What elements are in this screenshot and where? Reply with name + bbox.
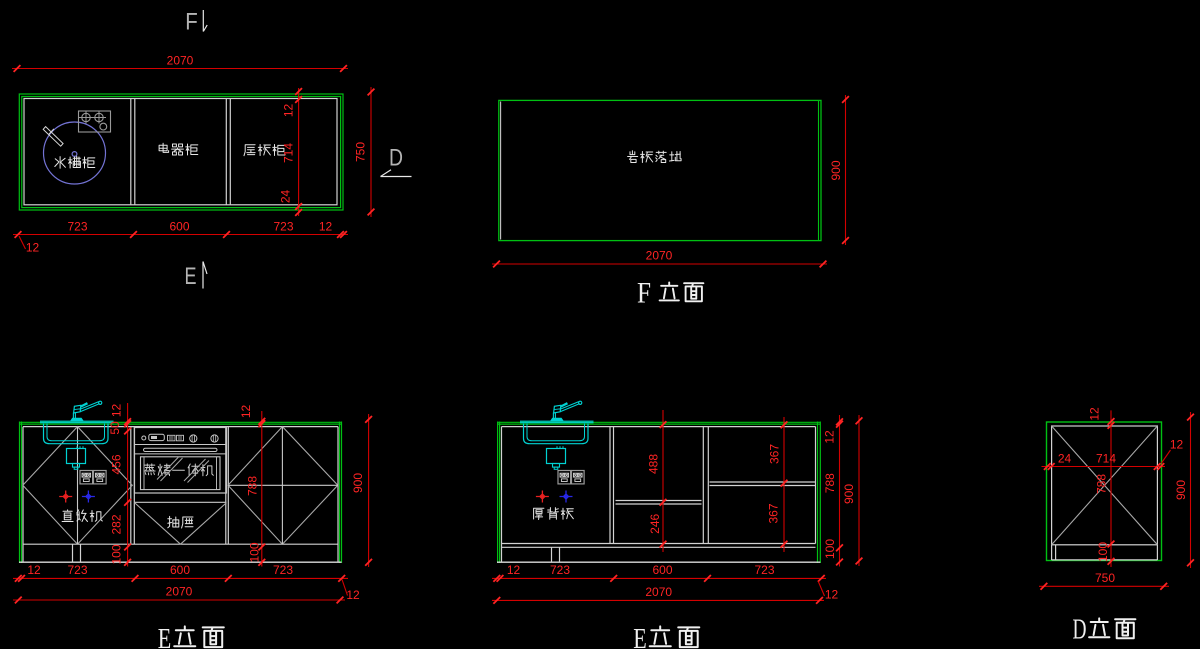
svg-text:282: 282 xyxy=(110,514,124,534)
svg-text:E: E xyxy=(158,623,172,649)
svg-text:900: 900 xyxy=(842,484,856,504)
svg-text:900: 900 xyxy=(1174,480,1188,500)
svg-text:12: 12 xyxy=(1088,407,1102,421)
svg-text:D: D xyxy=(1073,615,1087,646)
svg-text:750: 750 xyxy=(1095,571,1115,585)
svg-text:F: F xyxy=(637,277,651,310)
svg-text:367: 367 xyxy=(767,444,781,464)
svg-text:723: 723 xyxy=(273,220,293,234)
svg-text:788: 788 xyxy=(823,473,837,493)
svg-text:600: 600 xyxy=(170,563,190,577)
svg-text:723: 723 xyxy=(67,563,87,577)
svg-text:900: 900 xyxy=(351,473,365,493)
svg-text:12: 12 xyxy=(110,404,124,418)
svg-text:24: 24 xyxy=(1058,451,1072,465)
svg-text:488: 488 xyxy=(647,454,661,474)
svg-text:24: 24 xyxy=(279,190,293,204)
svg-text:750: 750 xyxy=(354,142,368,162)
svg-text:2070: 2070 xyxy=(646,249,673,263)
svg-text:246: 246 xyxy=(648,513,662,533)
svg-text:788: 788 xyxy=(246,476,260,496)
svg-text:2070: 2070 xyxy=(167,54,194,68)
svg-text:12: 12 xyxy=(26,241,40,255)
svg-text:E: E xyxy=(633,623,647,649)
svg-text:788: 788 xyxy=(1094,474,1108,494)
svg-text:714: 714 xyxy=(282,143,296,163)
svg-text:600: 600 xyxy=(169,220,189,234)
svg-text:456: 456 xyxy=(110,454,124,474)
svg-text:100: 100 xyxy=(1096,542,1110,562)
svg-text:2070: 2070 xyxy=(645,585,672,599)
svg-text:12: 12 xyxy=(319,220,333,234)
svg-text:723: 723 xyxy=(273,563,293,577)
svg-text:100: 100 xyxy=(248,542,262,562)
svg-text:F: F xyxy=(185,9,198,36)
svg-text:12: 12 xyxy=(825,588,839,602)
svg-text:12: 12 xyxy=(823,430,837,444)
svg-text:D: D xyxy=(389,145,403,172)
svg-text:600: 600 xyxy=(652,563,672,577)
svg-text:12: 12 xyxy=(282,104,296,118)
svg-text:723: 723 xyxy=(550,563,570,577)
svg-text:100: 100 xyxy=(110,544,124,564)
svg-text:12: 12 xyxy=(346,588,360,602)
svg-text:100: 100 xyxy=(823,539,837,559)
svg-text:723: 723 xyxy=(754,563,774,577)
svg-text:E: E xyxy=(185,263,197,290)
svg-text:12: 12 xyxy=(507,563,521,577)
svg-text:50: 50 xyxy=(108,421,122,435)
svg-text:2070: 2070 xyxy=(166,585,193,599)
svg-text:12: 12 xyxy=(27,563,41,577)
svg-text:714: 714 xyxy=(1096,451,1116,465)
svg-text:12: 12 xyxy=(1170,438,1184,452)
svg-text:723: 723 xyxy=(67,220,87,234)
svg-text:367: 367 xyxy=(766,503,780,523)
svg-text:12: 12 xyxy=(239,405,253,419)
svg-text:900: 900 xyxy=(829,160,843,180)
